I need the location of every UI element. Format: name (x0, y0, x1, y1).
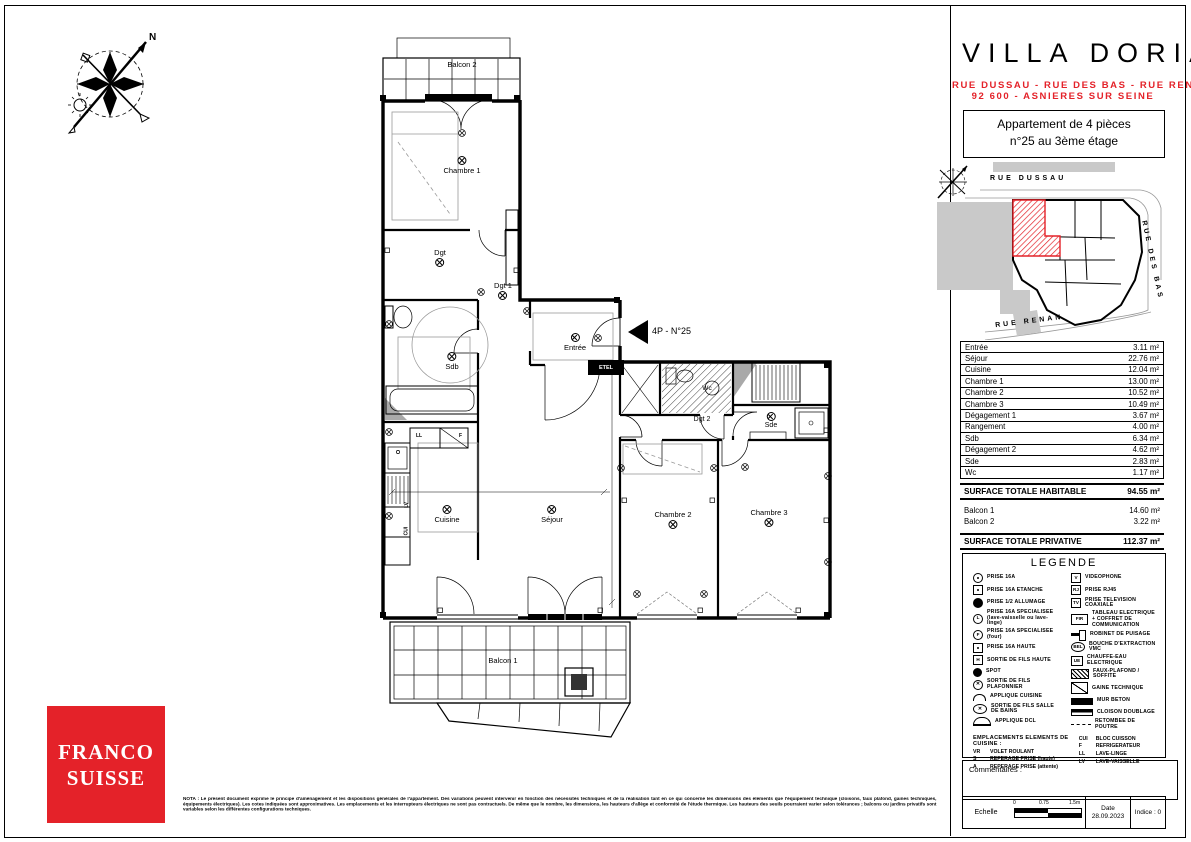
ceiling-light-icon (764, 518, 773, 527)
duct-swatch (1071, 682, 1088, 694)
legend-item: RETOMBEE DE POUTRE (1071, 719, 1159, 730)
logo-line1: FRANCO (47, 739, 165, 765)
partition-swatch (1071, 709, 1093, 716)
ceiling-light-icon (499, 291, 508, 300)
room-label-dgt: Dgt (434, 248, 446, 267)
legend-item: VVIDEOPHONE (1071, 573, 1159, 583)
address-line2: 92 600 - ASNIERES SUR SEINE (952, 91, 1174, 102)
total-privative-row: SURFACE TOTALE PRIVATIVE112.37 m² (960, 533, 1164, 550)
concrete-wall-swatch (1071, 698, 1093, 705)
room-label-balcon2: Balcon 2 (447, 60, 476, 69)
appliance-socket-icon: L (973, 614, 983, 624)
bathroom-wire-outlet-icon (973, 704, 987, 714)
legend-right-column: VVIDEOPHONE RJPRISE RJ45 TVPRISE TELEVIS… (1071, 573, 1159, 733)
balcony1 (390, 622, 630, 737)
legend-item: CLOISON DOUBLAGE (1071, 708, 1159, 717)
site-plan: RUE DUSSAU RUE DES BAS RUE RENAN (925, 160, 1175, 340)
legend-item: PRISE 16A HAUTE (973, 643, 1063, 653)
legend-item: APPLIQUE CUISINE (973, 693, 1063, 702)
legend-kitchen-item: FREFRIGERATEUR (1079, 743, 1159, 749)
comments-box: Commentaires : (962, 760, 1178, 800)
room-label-chambre2: Chambre 2 (654, 510, 691, 529)
total-habitable-row: SURFACE TOTALE HABITABLE94.55 m² (960, 483, 1164, 500)
legend-item: MUR BETON (1071, 697, 1159, 706)
soffit-swatch (1071, 669, 1089, 679)
kitchen-mark-lv: LV (404, 502, 410, 508)
legend-item: SORTIE DE FILS SALLE DE BAINS (973, 704, 1063, 715)
panel-divider (950, 5, 951, 836)
legend-item: LPRISE 16A SPECIALISEE (lave-vaisselle o… (973, 610, 1063, 627)
dcl-wall-light-icon (973, 717, 991, 726)
project-address: RUE DUSSAU - RUE DES BAS - RUE RENAN 92 … (952, 80, 1174, 102)
legend-left-column: PRISE 16A PRISE 16A ETANCHE PRISE 1/2 AL… (973, 573, 1063, 733)
interior-walls (383, 230, 830, 618)
room-label-dgt1: Dgt 1 (494, 281, 512, 300)
kitchen-mark-f: F (459, 433, 462, 439)
tv-socket-icon: TV (1071, 598, 1081, 608)
legend-item: TVPRISE TELEVISION COAXIALE (1071, 598, 1159, 609)
kitchen-mark-ll: LL (416, 433, 422, 439)
etel-badge: ETEL (588, 360, 624, 375)
videophone-icon: V (1071, 573, 1081, 583)
legend-item: ROBINET DE PUISAGE (1071, 631, 1159, 640)
logo-line2: SUISSE (47, 765, 165, 791)
legend-item: PRISE 16A ETANCHE (973, 585, 1063, 595)
kitchen-wall-light-icon (973, 694, 986, 701)
electrical-panel-icon: FIR (1071, 614, 1088, 625)
room-label-chambre3: Chambre 3 (750, 508, 787, 527)
water-heater-icon: UE (1071, 656, 1083, 666)
ceiling-light-icon (435, 258, 444, 267)
legend: LEGENDE PRISE 16A PRISE 16A ETANCHE PRIS… (962, 553, 1166, 758)
waterproof-socket-icon (973, 585, 983, 595)
nota-text: NOTA : Le présent document exprime le pr… (183, 797, 1149, 817)
legend-item: PRISE 1/2 ALLUMAGE (973, 598, 1063, 608)
legend-item: HSORTIE DE FILS HAUTE (973, 655, 1063, 665)
surface-row: Wc1.17 m² (960, 466, 1164, 478)
balcony2 (383, 38, 520, 101)
legend-item: FAUX-PLAFOND / SOFFITE (1071, 669, 1159, 680)
room-label-entree: Entrée (564, 333, 586, 352)
legend-item: GAINE TECHNIQUE (1071, 682, 1159, 694)
legend-title: LEGENDE (963, 554, 1165, 569)
french-door-sill (528, 614, 602, 620)
street-rue-dussau: RUE DUSSAU (990, 175, 1066, 182)
surface-table: Entrée3.11 m² Séjour22.76 m² Cuisine12.0… (960, 342, 1164, 550)
room-label-wc: Wc (702, 385, 711, 392)
apartment-line2: n°25 au 3ème étage (964, 133, 1164, 150)
dimension-lines (389, 369, 615, 608)
comments-label: Commentaires : (969, 765, 1022, 774)
spot-icon (973, 668, 982, 677)
room-label-sde: Sde (765, 412, 777, 429)
ceiling-light-icon (442, 505, 451, 514)
balcony-row: Balcon 23.22 m² (960, 516, 1164, 527)
address-line1: RUE DUSSAU - RUE DES BAS - RUE RENAN (952, 80, 1174, 91)
legend-item: FIRTABLEAU ELECTRIQUE + COFFRET DE COMMU… (1071, 611, 1159, 628)
kitchen-mark-cui: CUI (403, 527, 409, 536)
water-tap-icon (1071, 633, 1084, 636)
legend-item: BELBOUCHE D'EXTRACTION VMC (1071, 642, 1159, 653)
apartment-line1: Appartement de 4 pièces (964, 116, 1164, 133)
ceiling-light-icon (457, 156, 466, 165)
room-label-cuisine: Cuisine (434, 505, 459, 524)
ceiling-light-icon (570, 333, 579, 342)
ceiling-light-icon (447, 352, 456, 361)
entrance-arrow-icon (628, 320, 648, 344)
socket-symbols (385, 248, 829, 613)
room-label-sejour: Séjour (541, 505, 563, 524)
project-title: VILLA DORIA (962, 38, 1191, 69)
high-socket-icon (973, 643, 983, 653)
legend-item: SPOT (973, 668, 1063, 677)
legend-kitchen-item: LLLAVE-LINGE (1079, 751, 1159, 757)
ceiling-wire-outlet-icon (973, 680, 983, 690)
socket-icon (973, 573, 983, 583)
high-wire-outlet-icon: H (973, 655, 983, 665)
legend-item: APPLIQUE DCL (973, 717, 1063, 726)
legend-item: SORTIE DE FILS PLAFONNIER (973, 679, 1063, 690)
legend-item: FPRISE 16A SPECIALISEE (four) (973, 629, 1063, 640)
ceiling-light-icon (668, 520, 677, 529)
door-arcs (432, 100, 757, 614)
oven-socket-icon: F (973, 630, 983, 640)
legend-item: UECHAUFFE-EAU ELECTRIQUE (1071, 655, 1159, 666)
furniture (385, 112, 828, 565)
half-switch-socket-icon (973, 598, 983, 608)
site-mini-compass (938, 166, 967, 198)
ceiling-light-icon (767, 412, 776, 421)
legend-item: RJPRISE RJ45 (1071, 585, 1159, 595)
wc-hatch (662, 364, 731, 413)
room-label-balcon1: Balcon 1 (488, 656, 517, 665)
plan-sheet: N (0, 0, 1191, 842)
franco-suisse-logo: FRANCO SUISSE (47, 706, 165, 823)
room-label-sdb: Sdb (445, 352, 458, 371)
rj45-icon: RJ (1071, 585, 1081, 595)
legend-kitchen-item: CUIBLOC CUISSON (1079, 736, 1159, 742)
vmc-extract-icon: BEL (1071, 642, 1085, 652)
site-plan-drawing (925, 160, 1175, 340)
room-label-dgt2: Dgt 2 (694, 416, 711, 423)
balcony-row: Balcon 114.60 m² (960, 505, 1164, 516)
balcony1-inset (571, 674, 587, 690)
apartment-info-box: Appartement de 4 pièces n°25 au 3ème éta… (963, 110, 1165, 158)
room-label-chambre1: Chambre 1 (443, 156, 480, 175)
beam-swatch (1071, 724, 1091, 725)
ceiling-light-icon (548, 505, 557, 514)
legend-kitchen-item: VRVOLET ROULANT (973, 749, 1071, 755)
legend-kitchen-header: EMPLACEMENTS ELEMENTS DE CUISINE : (973, 735, 1071, 747)
legend-item: PRISE 16A (973, 573, 1063, 583)
entrance-label: 4P - N°25 (652, 326, 691, 336)
